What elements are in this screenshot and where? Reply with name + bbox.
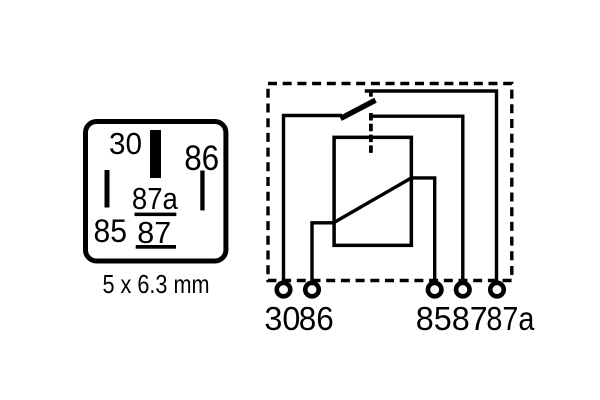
svg-text:30: 30 — [264, 301, 300, 338]
svg-text:87: 87 — [452, 301, 488, 338]
svg-text:5 x 6.3 mm: 5 x 6.3 mm — [103, 269, 210, 299]
svg-text:30: 30 — [109, 126, 142, 161]
svg-text:87: 87 — [137, 215, 171, 250]
svg-text:87a: 87a — [132, 181, 179, 216]
svg-text:85: 85 — [94, 213, 128, 249]
svg-text:87a: 87a — [486, 301, 534, 338]
svg-text:86: 86 — [299, 301, 334, 338]
svg-text:85: 85 — [416, 301, 452, 338]
